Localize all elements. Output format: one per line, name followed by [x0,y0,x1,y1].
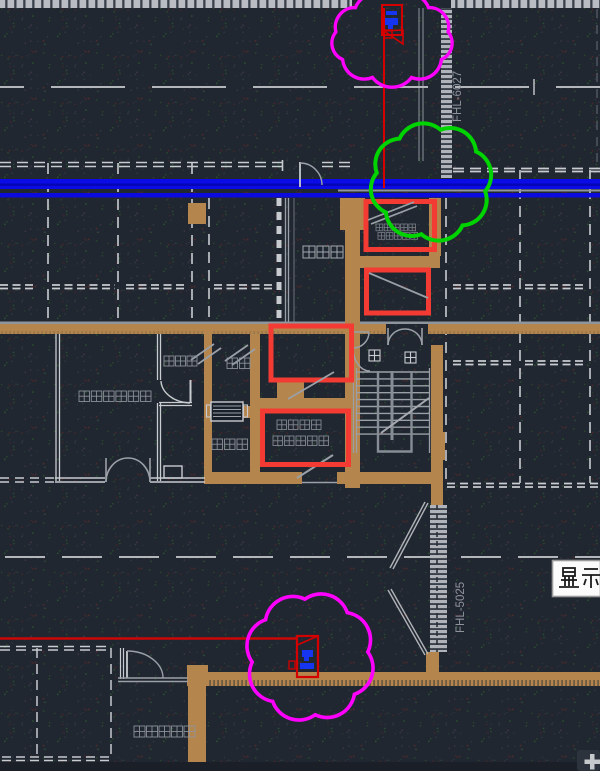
svg-text:FHL-6027: FHL-6027 [452,71,464,122]
svg-text:FHL-5025: FHL-5025 [455,582,467,633]
